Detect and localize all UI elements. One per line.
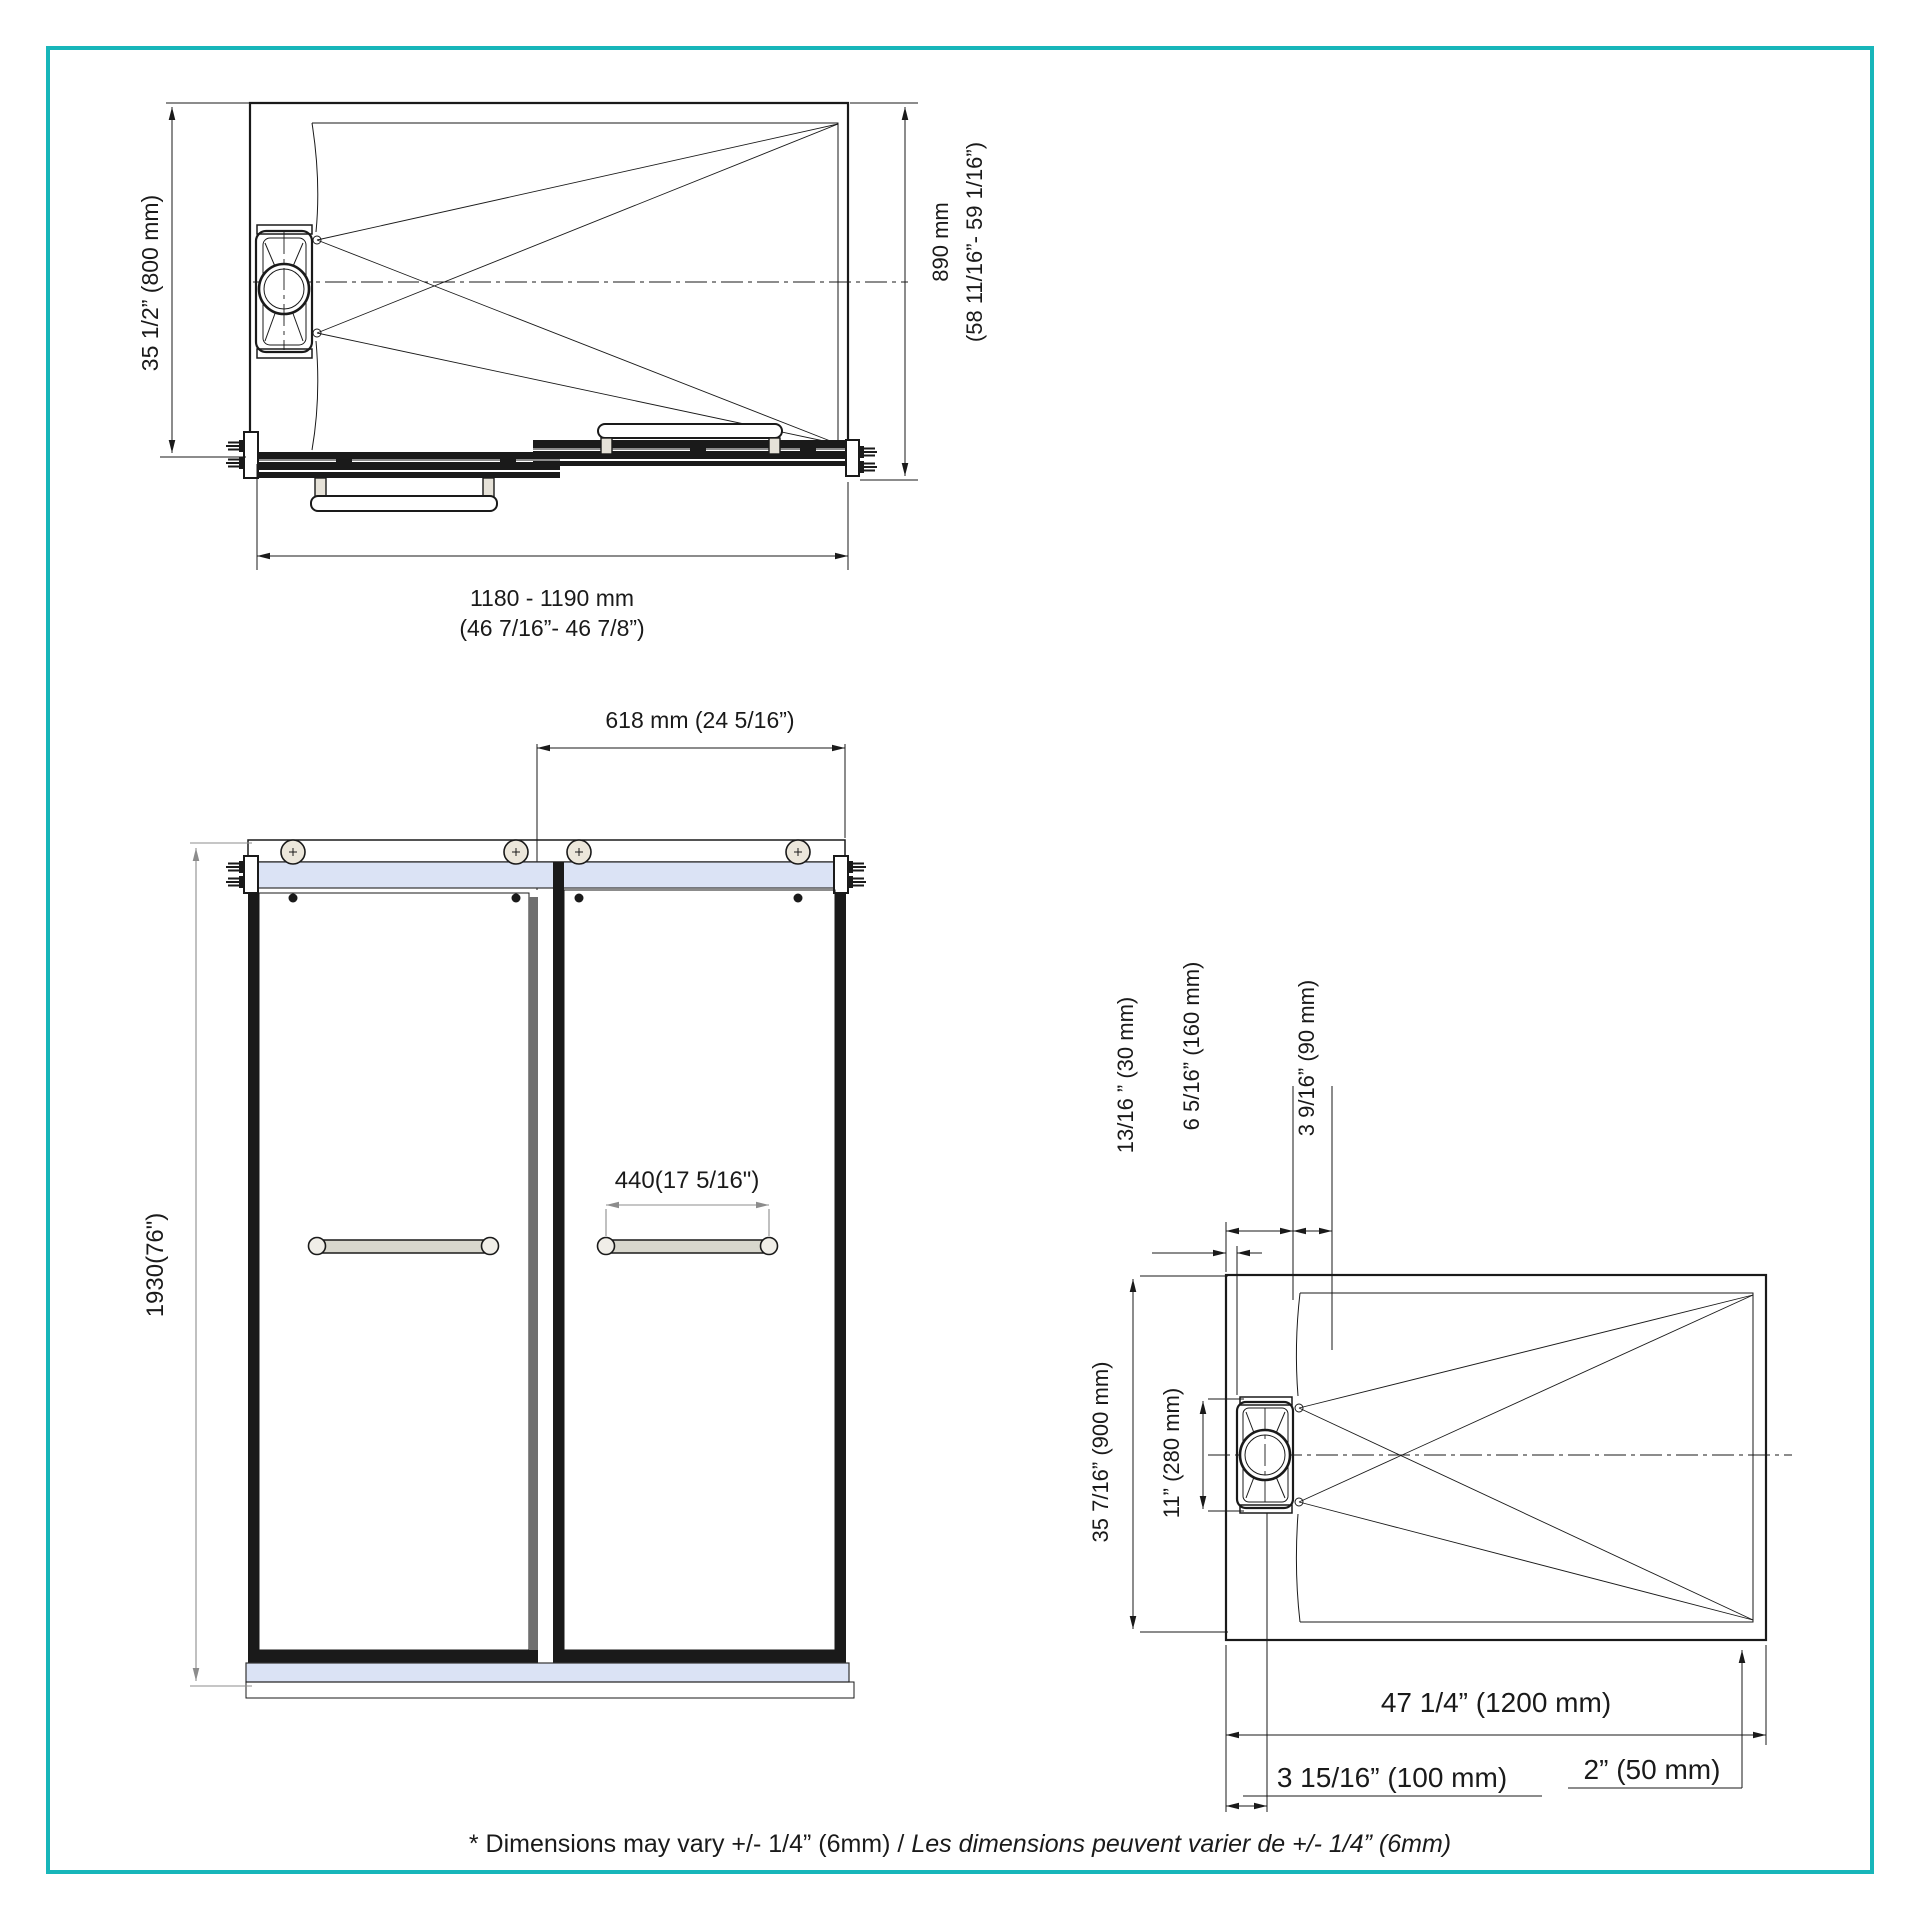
- top-plan-view: 35 1/2” (800 mm) 890 mm (58 11/16”- 59 1…: [137, 103, 987, 641]
- base-top-dimensions: 13/16 ” (30 mm) 6 5/16” (160 mm) 3 9/16”…: [1113, 962, 1332, 1395]
- dim-drain-length-label: 11” (280 mm): [1159, 1388, 1184, 1518]
- roller-wheels: [281, 840, 810, 864]
- dim-drain-offset-label: 3 15/16” (100 mm): [1277, 1762, 1507, 1793]
- track-assembly-plan: [226, 424, 877, 511]
- door-panels: [248, 862, 846, 1663]
- tolerance-note-en: * Dimensions may vary +/- 1/4” (6mm) /: [469, 1830, 911, 1858]
- dim-width-range-label-2: (46 7/16”- 46 7/8”): [459, 615, 644, 641]
- dim-base-width-label: 47 1/4” (1200 mm): [1381, 1687, 1611, 1718]
- base-plan-view: 13/16 ” (30 mm) 6 5/16” (160 mm) 3 9/16”…: [1088, 962, 1792, 1812]
- drain-base-view: [1237, 1397, 1293, 1513]
- height-dimension: 1930(76"): [142, 843, 252, 1686]
- dim-offset-30-label: 13/16 ” (30 mm): [1113, 997, 1138, 1154]
- dim-width-range-label-1: 1180 - 1190 mm: [470, 585, 634, 611]
- dim-right-label-1: 890 mm: [928, 202, 953, 281]
- dim-depth-label: 35 1/2” (800 mm): [137, 195, 163, 371]
- dim-offset-160-label: 6 5/16” (160 mm): [1179, 962, 1204, 1131]
- dim-right-label-2: (58 11/16”- 59 1/16”): [962, 142, 987, 342]
- spec-sheet: 35 1/2” (800 mm) 890 mm (58 11/16”- 59 1…: [0, 0, 1920, 1920]
- dim-edge-label: 2” (50 mm): [1584, 1754, 1721, 1785]
- page-border: [48, 48, 1872, 1872]
- front-elevation-view: 618 mm (24 5/16”): [142, 707, 866, 1698]
- technical-drawing: 35 1/2” (800 mm) 890 mm (58 11/16”- 59 1…: [0, 0, 1920, 1920]
- dim-handle-label: 440(17 5/16"): [615, 1167, 760, 1194]
- handle-dimension: 440(17 5/16"): [606, 1167, 769, 1236]
- dim-base-depth-label: 35 7/16” (900 mm): [1088, 1362, 1113, 1543]
- door-handle-right: [598, 1238, 778, 1255]
- bottom-sill-glass: [246, 1663, 849, 1682]
- door-handle-left: [309, 1238, 499, 1255]
- tolerance-note-fr: Les dimensions peuvent varier de +/- 1/4…: [911, 1830, 1451, 1858]
- base-left-dimensions: 35 7/16” (900 mm) 11” (280 mm): [1088, 1276, 1244, 1632]
- drain-top-view: [256, 225, 312, 358]
- top-view-dimensions: 35 1/2” (800 mm) 890 mm (58 11/16”- 59 1…: [137, 103, 987, 641]
- tolerance-note: * Dimensions may vary +/- 1/4” (6mm) / L…: [469, 1830, 1451, 1858]
- header-glass-band: [258, 862, 834, 888]
- dim-offset-90-label: 3 9/16” (90 mm): [1294, 980, 1319, 1137]
- dim-height-label: 1930(76"): [142, 1213, 169, 1318]
- dim-panel-width-label: 618 mm (24 5/16”): [605, 707, 794, 733]
- base-bottom-dimensions: 47 1/4” (1200 mm) 3 15/16” (100 mm) 2” (…: [1226, 1645, 1766, 1812]
- bottom-threshold: [246, 1682, 854, 1698]
